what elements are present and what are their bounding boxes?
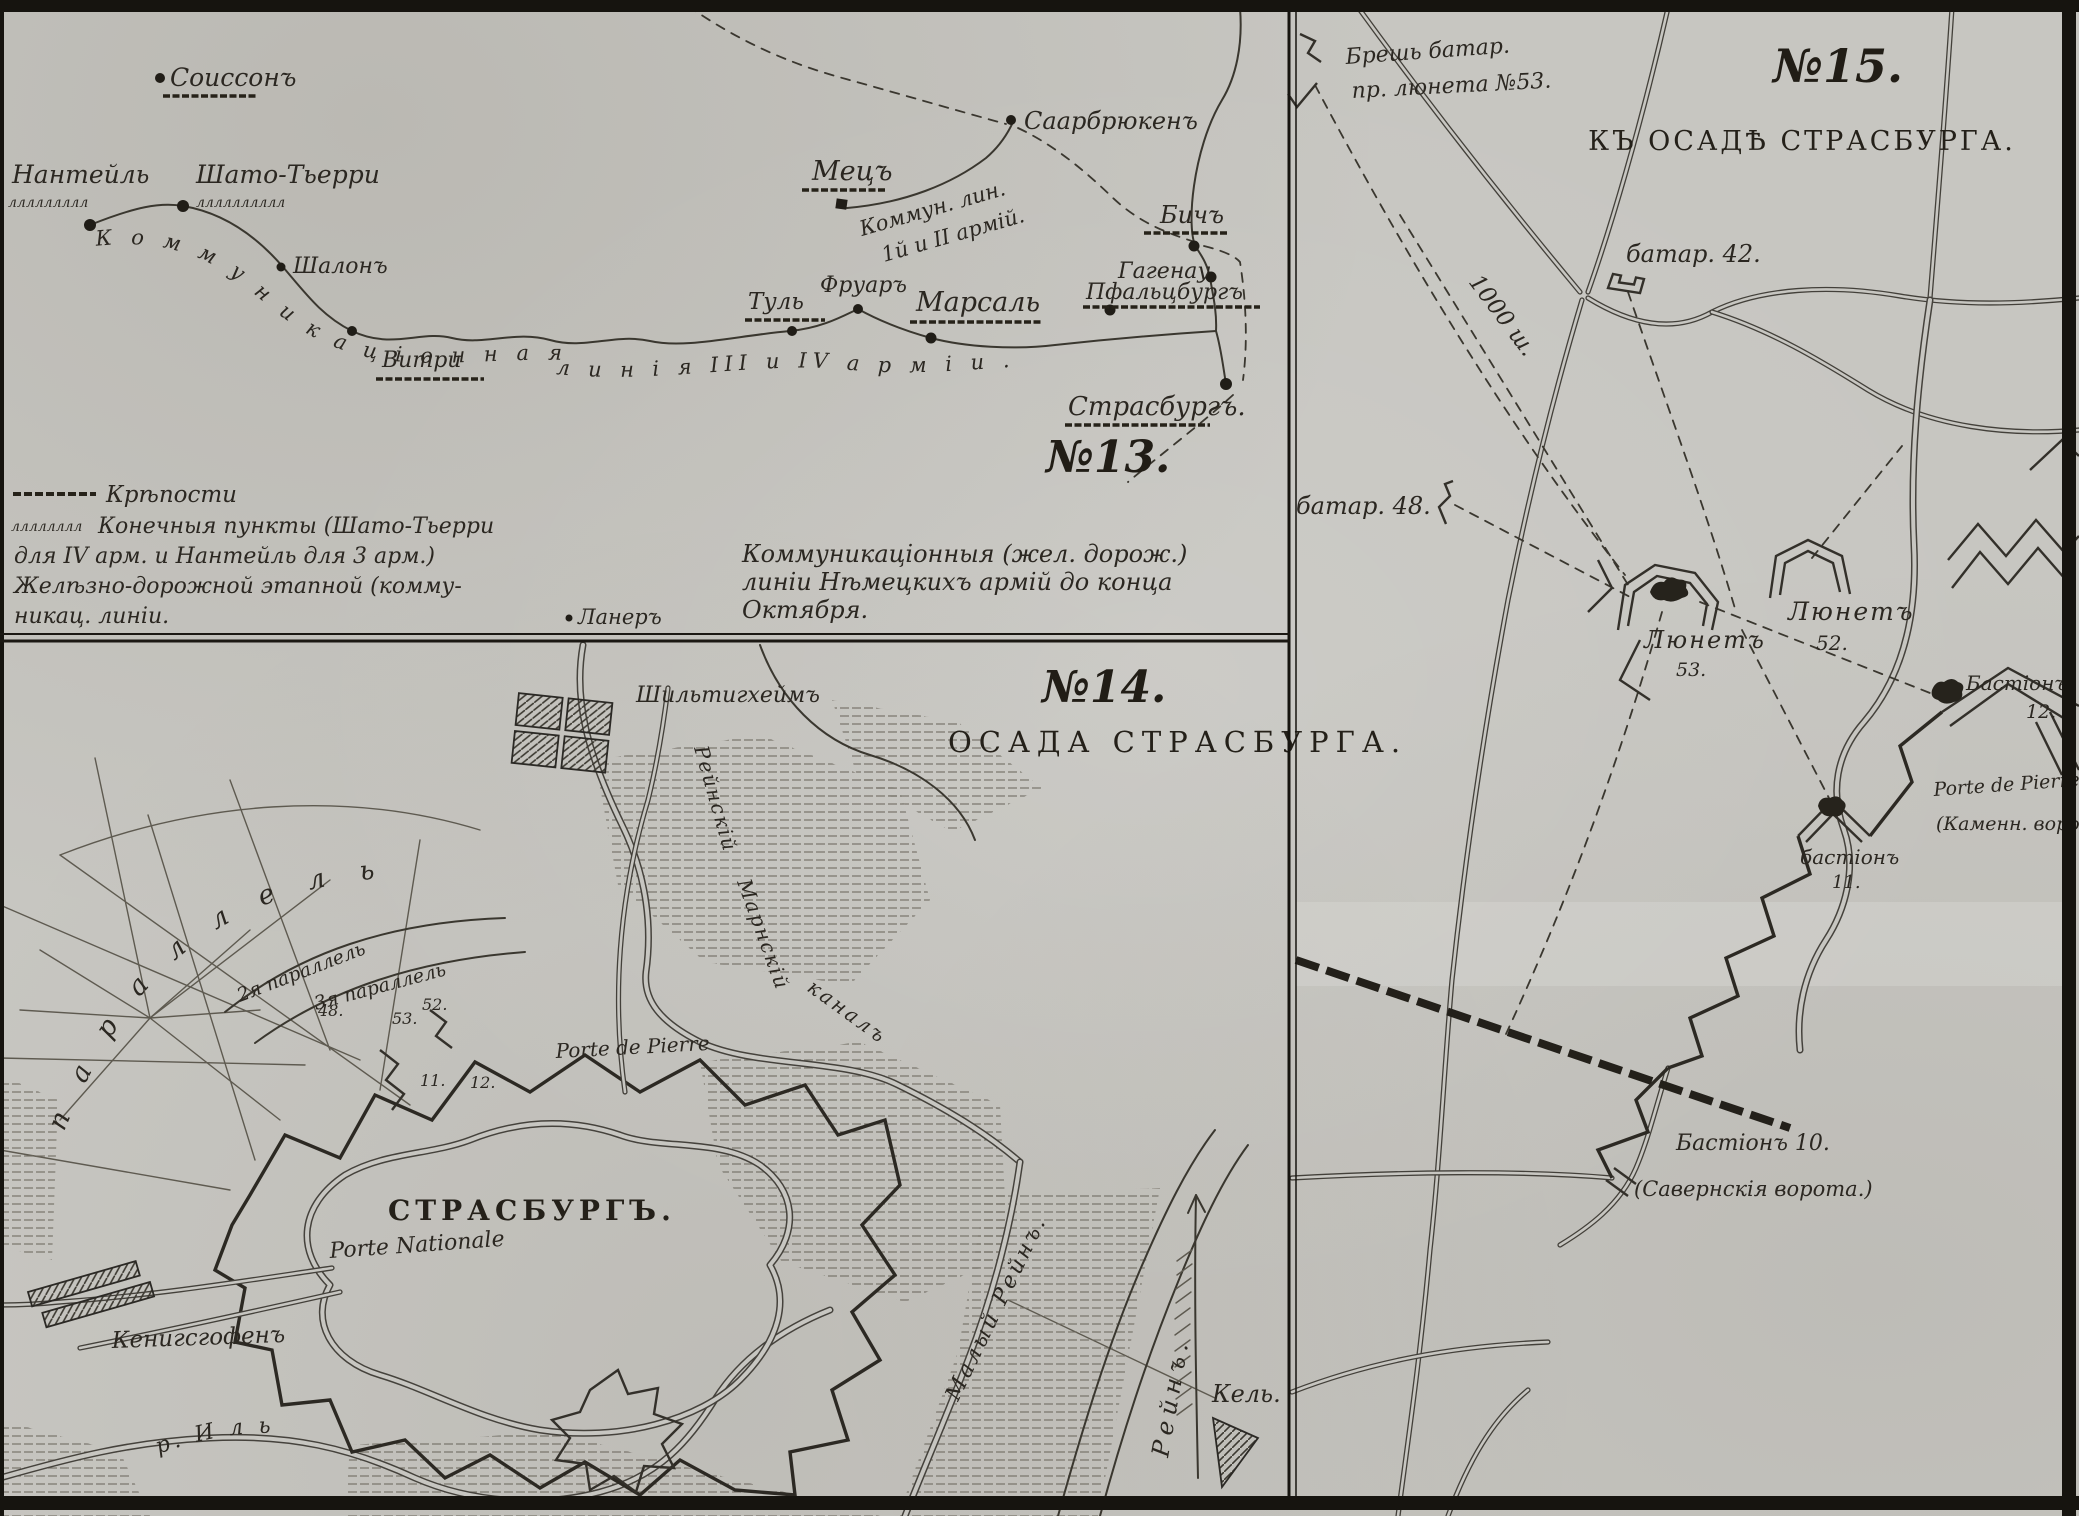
panel13-legend: Крѣпости лллллллл Конечныя пункты (Шато-… bbox=[11, 482, 494, 629]
legend-endpoint-squiggle-icon: лллллллл bbox=[11, 519, 82, 535]
city-label-bitche: Бичъ bbox=[1159, 201, 1224, 229]
battery-48-icon bbox=[1439, 481, 1453, 524]
label-bastion-11-num: 11. bbox=[1832, 872, 1861, 893]
label-saverne-gate: (Савернскія ворота.) bbox=[1634, 1177, 1873, 1201]
label-bastion-10: Бастіонъ 10. bbox=[1675, 1131, 1830, 1156]
city-label-frouard: Фруаръ bbox=[820, 273, 907, 298]
label-lunette-53-num: 53. bbox=[1676, 659, 1706, 681]
label-kehl: Кель. bbox=[1211, 1380, 1281, 1408]
legend-endpoints-line3: Желѣзно-дорожной этапной (комму- bbox=[12, 574, 462, 599]
quartered-redoubt-icon bbox=[512, 693, 613, 772]
label-bastion-12-num: 12. bbox=[2026, 701, 2056, 723]
label-ill-river: р. И л ь bbox=[152, 1414, 274, 1460]
label-porte-de-pierre-15: Porte de Pierre bbox=[1932, 769, 2079, 801]
label-breach-battery-line2: пр. люнета №53. bbox=[1351, 69, 1552, 104]
label-bastion-11: бастіонъ bbox=[1800, 845, 1899, 869]
map-svg: Соиссонъ Нантейль ллллллллл Шато-Тьерри … bbox=[0, 0, 2079, 1516]
city-label-metz: Мецъ bbox=[811, 156, 892, 187]
bastion-12-blob bbox=[1932, 679, 1964, 704]
panel15-detail-map: №15. КЪ ОСАДѢ СТРАСБУРГА. Брешь батар. п… bbox=[1288, 8, 2079, 1516]
metz-fortress-icon bbox=[835, 198, 847, 209]
label-porte-de-pierre-14: Porte de Pierre bbox=[554, 1031, 710, 1063]
fort-number-11: 11. bbox=[420, 1071, 445, 1090]
panel15-title: КЪ ОСАДѢ СТРАСБУРГА. bbox=[1588, 126, 2016, 157]
label-lunette-53: Люнетъ bbox=[1643, 626, 1766, 654]
endpoint-squiggle-nanteuil: ллллллллл bbox=[8, 195, 88, 211]
label-rhine: Рейнъ. bbox=[1146, 1335, 1195, 1460]
rampart-segment-1 bbox=[1870, 712, 1942, 836]
city-label-marsal: Марсаль bbox=[915, 287, 1040, 318]
atlas-sheet: Соиссонъ Нантейль ллллллллл Шато-Тьерри … bbox=[0, 0, 2079, 1516]
panel14-number: №14. bbox=[1040, 662, 1166, 713]
paper-fold-band bbox=[1296, 902, 2066, 986]
panel13-caption-line2: линіи Нѣмецкихъ армій до конца bbox=[742, 568, 1172, 596]
label-lunette-52: Люнетъ bbox=[1786, 597, 1915, 626]
panel13-caption-line3: Октября. bbox=[742, 596, 868, 624]
city-label-strasbourg: Страсбургъ. bbox=[1068, 392, 1246, 422]
fort-number-48: 48. bbox=[317, 1001, 343, 1020]
siege-battery-bars bbox=[28, 1259, 154, 1330]
label-bastion-12: Бастіонъ bbox=[1965, 671, 2068, 695]
hatched-terrain bbox=[0, 700, 1160, 1516]
endpoint-squiggle-chateau: лллллллллл bbox=[196, 195, 285, 211]
panel14-siege-map: №14. ОСАДА СТРАСБУРГА. Шильтигхеймъ СТРА… bbox=[0, 645, 1407, 1516]
city-label-laner: Ланеръ bbox=[577, 605, 662, 629]
label-strasbourg-city: СТРАСБУРГЪ. bbox=[388, 1194, 676, 1227]
frame-left bbox=[0, 0, 4, 1516]
fort-number-52: 52. bbox=[422, 995, 447, 1014]
legend-endpoints-line2: для IV арм. и Нантейль для 3 арм.) bbox=[14, 544, 435, 569]
city-label-soissons: Соиссонъ bbox=[170, 63, 296, 92]
label-schiltigheim: Шильтигхеймъ bbox=[635, 683, 820, 708]
label-distance-1000: 1000 ш. bbox=[1463, 270, 1541, 361]
label-breach-battery-line1: Брешь батар. bbox=[1344, 34, 1511, 70]
scatter-label-line-3-4-armies: л и н і я III и IV а р м і и . bbox=[556, 348, 1016, 382]
panel15-number: №15. bbox=[1771, 39, 1903, 93]
frame-bottom bbox=[0, 1496, 2079, 1510]
legend-fortresses-label: Крѣпости bbox=[105, 482, 237, 508]
city-label-nanteuil: Нантейль bbox=[11, 160, 149, 189]
label-canal-part3: каналъ bbox=[803, 975, 892, 1049]
label-battery-48: батар. 48. bbox=[1296, 492, 1431, 520]
city-label-toul: Туль bbox=[748, 289, 804, 315]
label-koenigshofen: Кенигсгофенъ bbox=[110, 1322, 285, 1354]
legend-endpoints-line1: Конечныя пункты (Шато-Тьерри bbox=[97, 514, 494, 539]
label-porte-nationale: Porte Nationale bbox=[328, 1227, 506, 1264]
legend-endpoints-line4: никац. линіи. bbox=[14, 604, 169, 629]
river-flow-arrow bbox=[1175, 1195, 1205, 1478]
panel15-roads bbox=[1292, 8, 2079, 1516]
fort-number-53: 53. bbox=[392, 1009, 417, 1028]
outworks-zigzag-band bbox=[1948, 520, 2079, 588]
lunette-53-ruin-blob bbox=[1650, 577, 1688, 601]
label-lunette-52-num: 52. bbox=[1816, 631, 1848, 655]
city-label-saarbruecken: Саарбрюкенъ bbox=[1024, 107, 1198, 135]
panel13-communication-map: Соиссонъ Нантейль ллллллллл Шато-Тьерри … bbox=[8, 6, 1260, 629]
breach-battery-icon bbox=[1300, 34, 1321, 62]
panel14-title: ОСАДА СТРАСБУРГА. bbox=[948, 725, 1407, 759]
city-moat bbox=[307, 1124, 790, 1434]
scatter-label-communication: К о м м у н и к а ц і о н н а я bbox=[94, 225, 568, 368]
breach-battery-mark-icon bbox=[1288, 83, 1317, 107]
battery-42-icon bbox=[1608, 274, 1644, 293]
panel13-number: №13. bbox=[1044, 432, 1170, 483]
frame-right bbox=[2062, 0, 2076, 1516]
city-label-chalons: Шалонъ bbox=[292, 254, 388, 279]
bastion-11-blob bbox=[1818, 796, 1846, 816]
label-stone-gate: (Каменн. ворота) bbox=[1936, 813, 2079, 835]
fort-number-12: 12. bbox=[470, 1073, 495, 1092]
city-label-pfalzburg: Пфальцбургъ bbox=[1085, 280, 1243, 305]
label-battery-42: батар. 42. bbox=[1626, 240, 1761, 268]
city-label-chateau-thierry: Шато-Тьерри bbox=[195, 160, 380, 189]
rampart-segment-3 bbox=[1598, 1068, 1668, 1178]
panel13-caption-line1: Коммуникаціонныя (жел. дорож.) bbox=[741, 540, 1187, 568]
kehl-fort-icon bbox=[1213, 1418, 1258, 1487]
frame-top bbox=[0, 0, 2079, 12]
